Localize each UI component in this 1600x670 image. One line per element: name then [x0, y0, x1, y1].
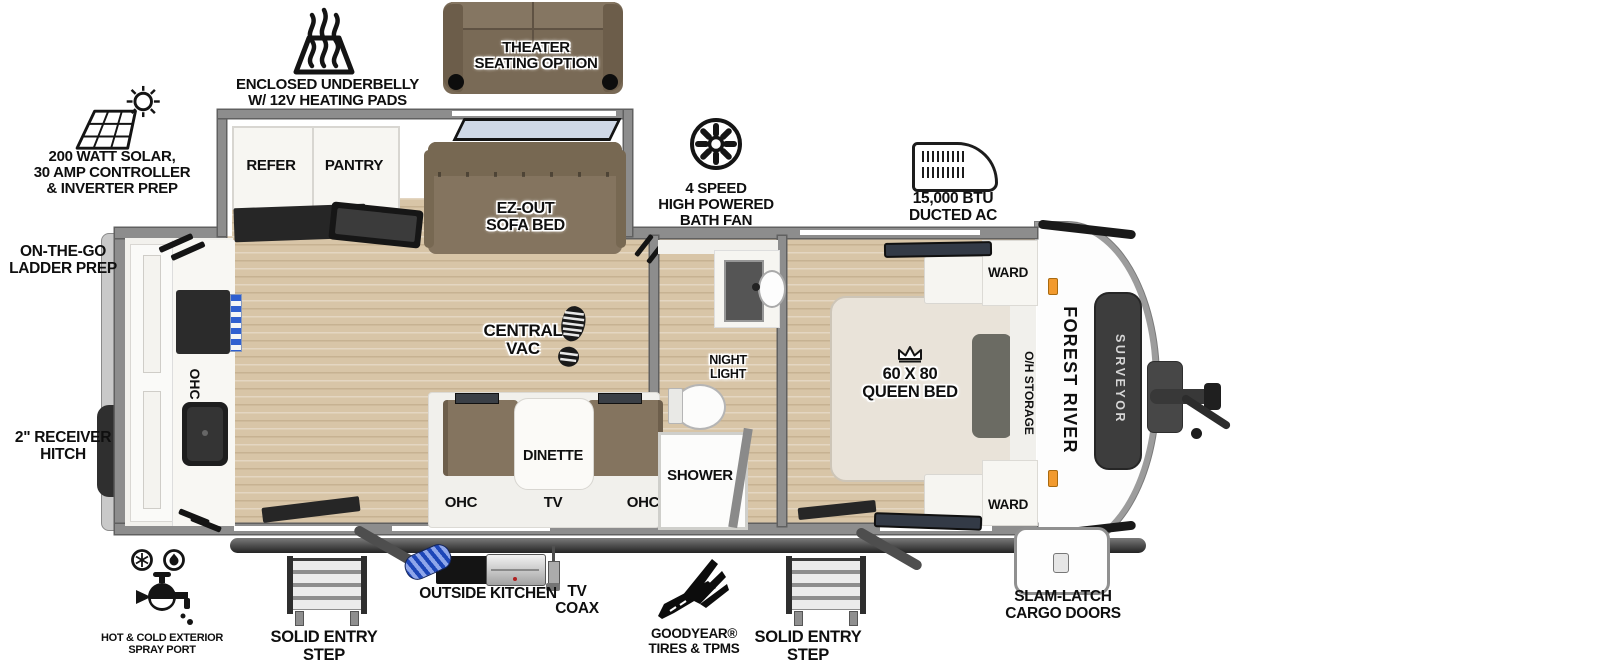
griddle-seam	[491, 569, 539, 571]
step-foot	[350, 611, 359, 626]
dinette-window-sill-left	[455, 393, 499, 404]
entry-step-bedroom-callout: SOLID ENTRY STEP	[742, 629, 874, 665]
sofa-bed	[428, 142, 622, 254]
dinette-bench-right	[588, 400, 663, 476]
floorplan-diagram: FOREST RIVER SURVEYOR OHC REF	[0, 0, 1600, 670]
ac-unit-icon	[912, 142, 998, 192]
marker-light-top	[1048, 278, 1058, 295]
bath-faucet	[752, 283, 760, 291]
sofa-backrest	[428, 142, 622, 176]
ohc-left-label: OHC	[430, 495, 492, 511]
underbelly-callout: ENCLOSED UNDERBELLY W/ 12V HEATING PADS	[235, 77, 420, 109]
entry-step-bedroom-graphic	[786, 556, 866, 614]
tv-label: TV	[522, 495, 584, 511]
sofa-arm-right	[616, 150, 626, 248]
galley-door-slat	[143, 391, 161, 509]
dinette-window-sill-right	[598, 393, 642, 404]
spray-port-icon	[124, 548, 198, 626]
oh-storage-label: O/H STORAGE	[1022, 347, 1036, 439]
dinette-label: DINETTE	[514, 449, 592, 465]
galley-counter	[172, 240, 235, 526]
slideout-griddle-inner	[335, 208, 417, 242]
tv-coax-connector	[548, 561, 560, 585]
sofa-arm-left	[424, 150, 434, 248]
step-rungs	[792, 558, 860, 610]
ladder-prep-callout: ON-THE-GO LADDER PREP	[0, 244, 126, 277]
bath-fan-icon	[689, 117, 743, 171]
step-foot	[849, 611, 858, 626]
ac-vent-row	[922, 151, 966, 162]
step-foot	[295, 611, 304, 626]
step-foot	[794, 611, 803, 626]
ward-bottom-label: WARD	[975, 498, 1041, 513]
wall-top-left	[115, 228, 226, 238]
step-rungs	[293, 558, 361, 610]
tires-callout: GOODYEAR® TIRES & TPMS	[628, 627, 760, 656]
cargo-door	[1014, 527, 1110, 595]
entry-step-main-callout: SOLID ENTRY STEP	[258, 629, 390, 665]
ward-top-label: WARD	[975, 266, 1041, 281]
awning-strip-bottom-1	[234, 526, 360, 531]
theater-foot-right	[602, 74, 618, 90]
hitch-jack-wheel	[1191, 428, 1202, 439]
galley-sink-drain	[202, 430, 208, 436]
bed-pillow	[972, 334, 1012, 438]
night-light-label: NIGHT LIGHT	[678, 354, 778, 381]
brand-manufacturer: FOREST RIVER	[1059, 289, 1080, 471]
tv-coax-callout: TV COAX	[536, 584, 618, 617]
hitch-coupler	[1204, 383, 1221, 410]
tv-coax-cable	[552, 546, 555, 562]
step-rail	[860, 556, 866, 614]
spray-port-callout: HOT & COLD EXTERIOR SPRAY PORT	[98, 633, 226, 657]
dinette-bench-left	[443, 400, 518, 476]
bath-sink	[758, 270, 786, 308]
goodyear-wingfoot-icon	[656, 554, 732, 622]
galley-cabinet-doors	[130, 244, 174, 522]
sofa-bed-label: EZ-OUT SOFA BED	[438, 200, 613, 235]
solar-callout: 200 WATT SOLAR, 30 AMP CONTROLLER & INVE…	[22, 149, 202, 198]
shower-label: SHOWER	[658, 468, 742, 484]
entry-step-main-graphic	[287, 556, 367, 614]
brand-model: SURVEYOR	[1113, 301, 1127, 457]
galley-ohc-label: OHC	[187, 362, 203, 406]
galley-sink	[182, 402, 228, 466]
galley-door-slat	[143, 255, 161, 373]
cargo-doors-callout: SLAM-LATCH CARGO DOORS	[998, 589, 1128, 622]
ducted-ac-callout: 15,000 BTU DUCTED AC	[895, 191, 1011, 224]
toilet-tank	[668, 388, 683, 424]
receiver-hitch-callout: 2" RECEIVER HITCH	[0, 430, 126, 463]
marker-light-bottom	[1048, 470, 1058, 487]
pantry-label: PANTRY	[312, 158, 396, 174]
awning-strip-slideout	[452, 111, 616, 116]
sofa-button-row	[438, 172, 612, 177]
outside-kitchen-griddle	[486, 554, 546, 586]
dinette-table	[514, 398, 594, 490]
slideout-wall-left	[218, 110, 226, 236]
bath-fan-callout: 4 SPEED HIGH POWERED BATH FAN	[648, 181, 784, 230]
galley-cooktop-knobs	[230, 294, 242, 352]
cargo-door-latch	[1053, 553, 1069, 573]
theater-foot-left	[448, 74, 464, 90]
slideout-window	[452, 118, 621, 141]
galley-cooktop	[176, 290, 230, 354]
heating-pad-icon	[292, 2, 356, 76]
bedroom-window-top	[884, 241, 992, 258]
theater-cushion-divider	[532, 2, 534, 42]
ward-cabinet-bottom	[982, 460, 1038, 526]
theater-label: THEATER SEATING OPTION	[446, 40, 626, 72]
awning-strip-front-top	[800, 230, 980, 235]
griddle-indicator	[513, 577, 517, 581]
crown-icon	[895, 344, 925, 364]
ac-vent-row	[922, 167, 966, 178]
step-rail	[361, 556, 367, 614]
queen-bed-label: 60 X 80 QUEEN BED	[845, 366, 975, 402]
solar-panel-icon	[70, 84, 162, 154]
refer-label: REFER	[232, 158, 310, 174]
